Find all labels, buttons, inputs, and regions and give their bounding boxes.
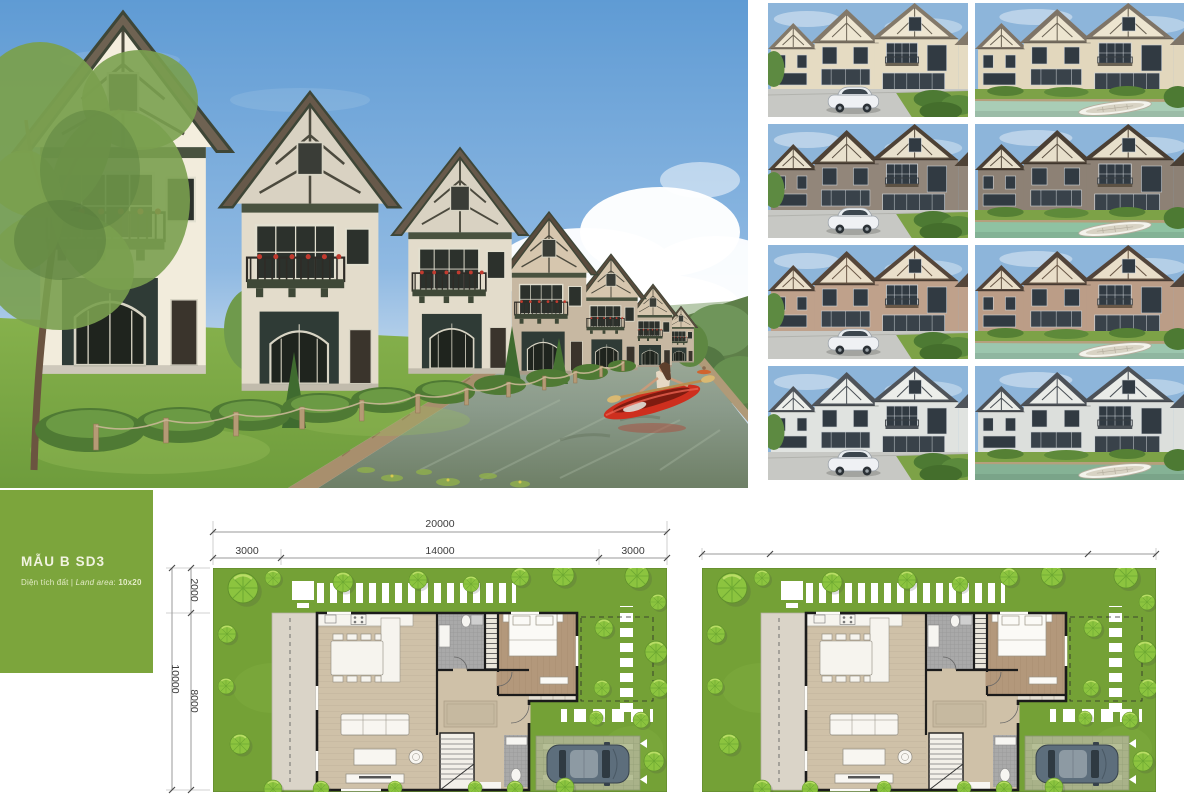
thumbnail-variant-cream-street <box>768 3 968 117</box>
dim-top-segment-1: 3000 <box>235 545 259 557</box>
dim-left-segment-1: 2000 <box>188 578 200 602</box>
dim-overall-height: 10000 <box>169 664 181 693</box>
thumbnail-variant-gray-street <box>768 366 968 480</box>
villa-variant-gallery <box>768 3 1184 480</box>
model-label-card: MẪU B SD3 Diện tích đất | Land area: 10x… <box>0 490 153 673</box>
floor-plan-1 <box>213 568 667 792</box>
thumbnail-variant-rose-canal <box>975 245 1184 359</box>
thumbnail-variant-rose-street <box>768 245 968 359</box>
hero-canal-villas-rendering <box>0 0 748 488</box>
thumbnail-variant-cream-canal <box>975 3 1184 117</box>
dim-left-segment-2: 8000 <box>188 689 200 713</box>
floor-plan-2 <box>702 568 1156 792</box>
dim-overall-width: 20000 <box>425 518 454 530</box>
brochure-page: MẪU B SD3 Diện tích đất | Land area: 10x… <box>0 0 1200 805</box>
model-title: MẪU B SD3 <box>21 554 153 569</box>
dim-top-segment-3: 3000 <box>621 545 645 557</box>
thumbnail-variant-brown-canal <box>975 124 1184 238</box>
thumbnail-variant-gray-canal <box>975 366 1184 480</box>
plan2-dimension-ticks <box>695 545 1165 563</box>
dim-top-segment-2: 14000 <box>425 545 454 557</box>
land-area-caption: Diện tích đất | Land area: 10x20 <box>21 578 153 587</box>
thumbnail-variant-brown-street <box>768 124 968 238</box>
hero-image <box>0 0 748 488</box>
